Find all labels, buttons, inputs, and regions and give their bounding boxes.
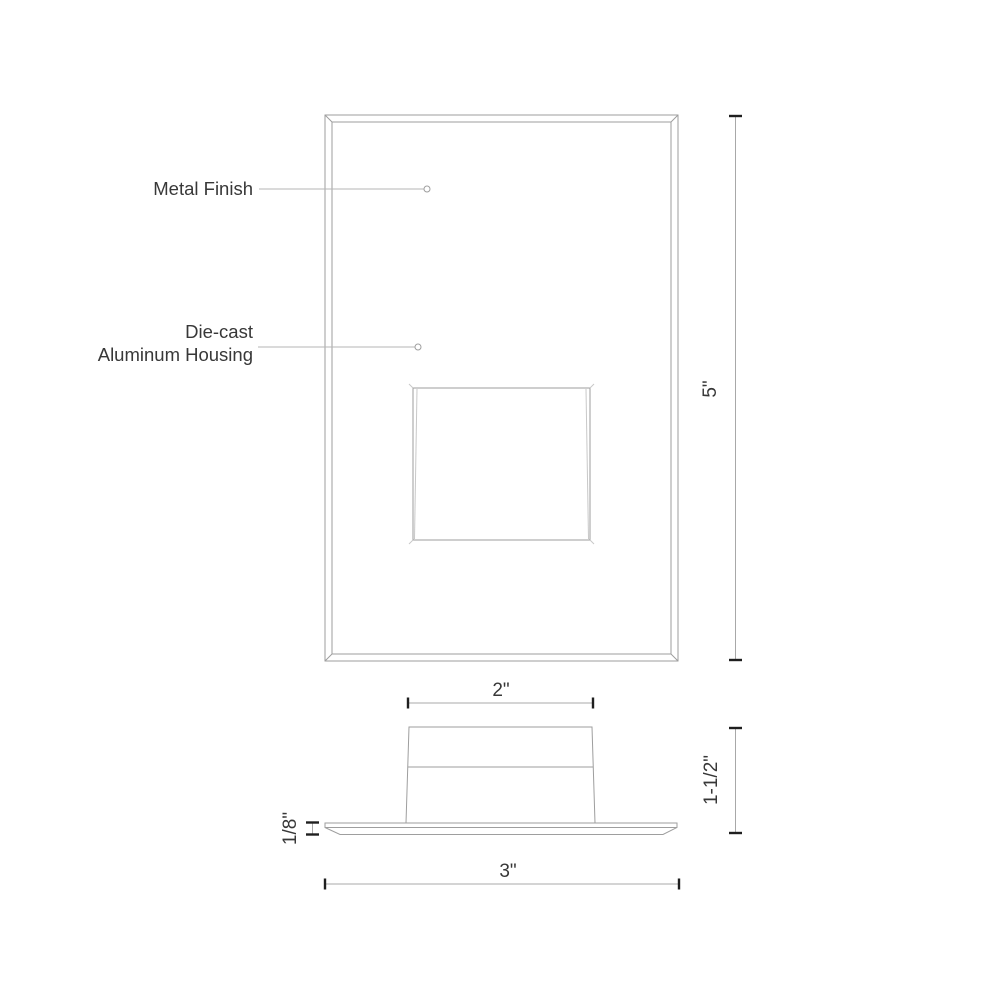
dim-side-height-text: 1-1/2" <box>701 755 722 805</box>
dim-housing-width: 2" <box>408 680 593 709</box>
bevel-miter-top-left <box>325 115 332 122</box>
dim-plate-width-text: 3" <box>499 861 516 882</box>
technical-drawing: Metal Finish Die-cast Aluminum Housing 5… <box>0 0 1000 1000</box>
metal-finish-label: Metal Finish <box>153 178 253 199</box>
dim-front-height-text: 5" <box>700 380 721 397</box>
bevel-miter-bottom-left <box>325 654 332 661</box>
dim-plate-width: 3" <box>325 861 679 890</box>
dim-plate-thickness-text: 1/8" <box>280 812 301 845</box>
metal-finish-leader-dot <box>424 186 430 192</box>
faceplate-profile <box>325 823 677 835</box>
dim-side-height: 1-1/2" <box>701 728 742 833</box>
opening-chamfer-top-left <box>409 384 413 388</box>
front-view <box>325 115 678 661</box>
drawing-canvas: Metal Finish Die-cast Aluminum Housing 5… <box>0 0 1000 1000</box>
opening-chamfer-bottom-right <box>590 540 594 544</box>
dim-front-height: 5" <box>700 116 742 660</box>
housing-profile <box>406 727 595 823</box>
lamp-opening-edge <box>413 388 590 540</box>
opening-taper-left <box>415 389 418 539</box>
opening-taper-right <box>586 389 589 539</box>
bevel-miter-top-right <box>671 115 678 122</box>
bevel-miter-bottom-right <box>671 654 678 661</box>
callouts: Metal Finish Die-cast Aluminum Housing <box>98 178 430 365</box>
lamp-opening <box>409 384 594 544</box>
opening-chamfer-bottom-left <box>409 540 413 544</box>
dim-plate-thickness: 1/8" <box>280 812 319 845</box>
die-cast-label-line1: Die-cast <box>185 321 253 342</box>
housing-leader-dot <box>415 344 421 350</box>
opening-chamfer-top-right <box>590 384 594 388</box>
dim-housing-width-text: 2" <box>492 680 509 701</box>
die-cast-label-line2: Aluminum Housing <box>98 344 253 365</box>
side-view <box>325 727 677 835</box>
